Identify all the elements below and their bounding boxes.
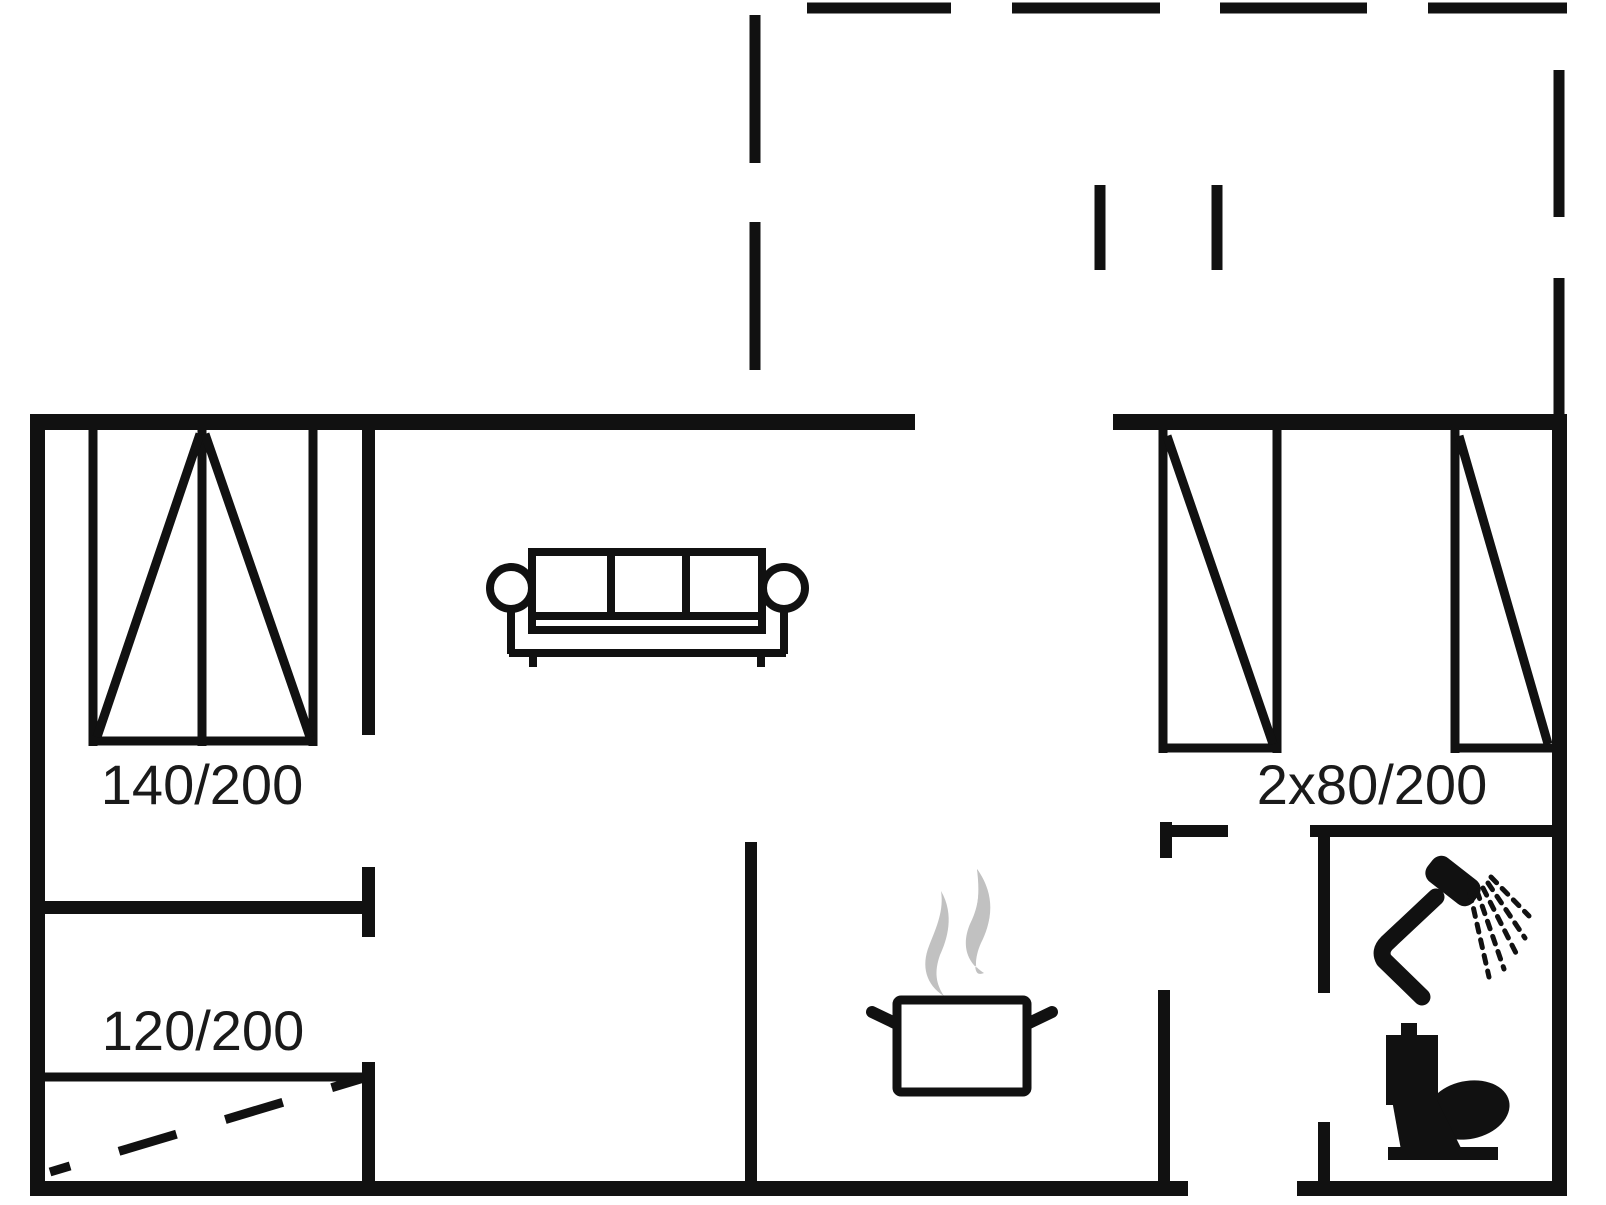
wall-living-kitchen: [745, 842, 757, 1181]
steam-wisp-right-tail: [967, 869, 990, 974]
extra-bed-size-label: 120/200: [102, 999, 304, 1062]
wall-right: [1552, 414, 1567, 1196]
shower-spray: [1470, 877, 1529, 977]
wall-bedroom1-living: [362, 430, 375, 735]
wall-bedroom-divider: [44, 901, 375, 914]
extra-bed-icon: [44, 1077, 375, 1172]
sofa-armrest-right: [763, 567, 805, 609]
pot-body: [897, 1000, 1027, 1092]
toilet-tank: [1386, 1035, 1438, 1105]
toilet-icon: [1386, 1023, 1515, 1160]
twin-bed-right-icon: [1451, 430, 1552, 753]
wall-bottom-right: [1297, 1181, 1567, 1196]
wall-bottom-left: [30, 1181, 1188, 1196]
sofa-armrest-left: [490, 567, 532, 609]
terrace-dashed-outline: [755, 8, 1567, 414]
steam-icon: [925, 869, 990, 996]
wall-left: [30, 414, 45, 1196]
wall-bathroom-left-lower: [1318, 1122, 1330, 1181]
wall-bathroom-top: [1310, 825, 1552, 837]
shower-arm: [1382, 897, 1436, 997]
wall-divider-jamb: [362, 867, 375, 937]
double-bed-size-label: 140/200: [101, 753, 303, 816]
wall-hall-lower: [1158, 990, 1170, 1181]
wall-top-left: [30, 414, 915, 430]
double-bed-icon: [89, 430, 317, 746]
cooking-pot-icon: [872, 1000, 1052, 1092]
twin-bed-left-icon: [1159, 430, 1281, 753]
shower-icon: [1382, 851, 1529, 997]
toilet-flush-knob: [1401, 1023, 1417, 1036]
twin-beds-size-label: 2x80/200: [1257, 753, 1487, 816]
floor-plan-canvas: 140/200 120/200 2x80/200: [0, 0, 1606, 1205]
wall-bathroom-left-upper: [1318, 837, 1330, 993]
wall-hall-stub-h: [1160, 825, 1228, 837]
wall-top-right: [1113, 414, 1567, 430]
steam-wisp-left: [925, 891, 948, 996]
sofa-icon: [490, 552, 805, 667]
floor-plan: 140/200 120/200 2x80/200: [0, 0, 1606, 1205]
toilet-base: [1388, 1147, 1498, 1160]
